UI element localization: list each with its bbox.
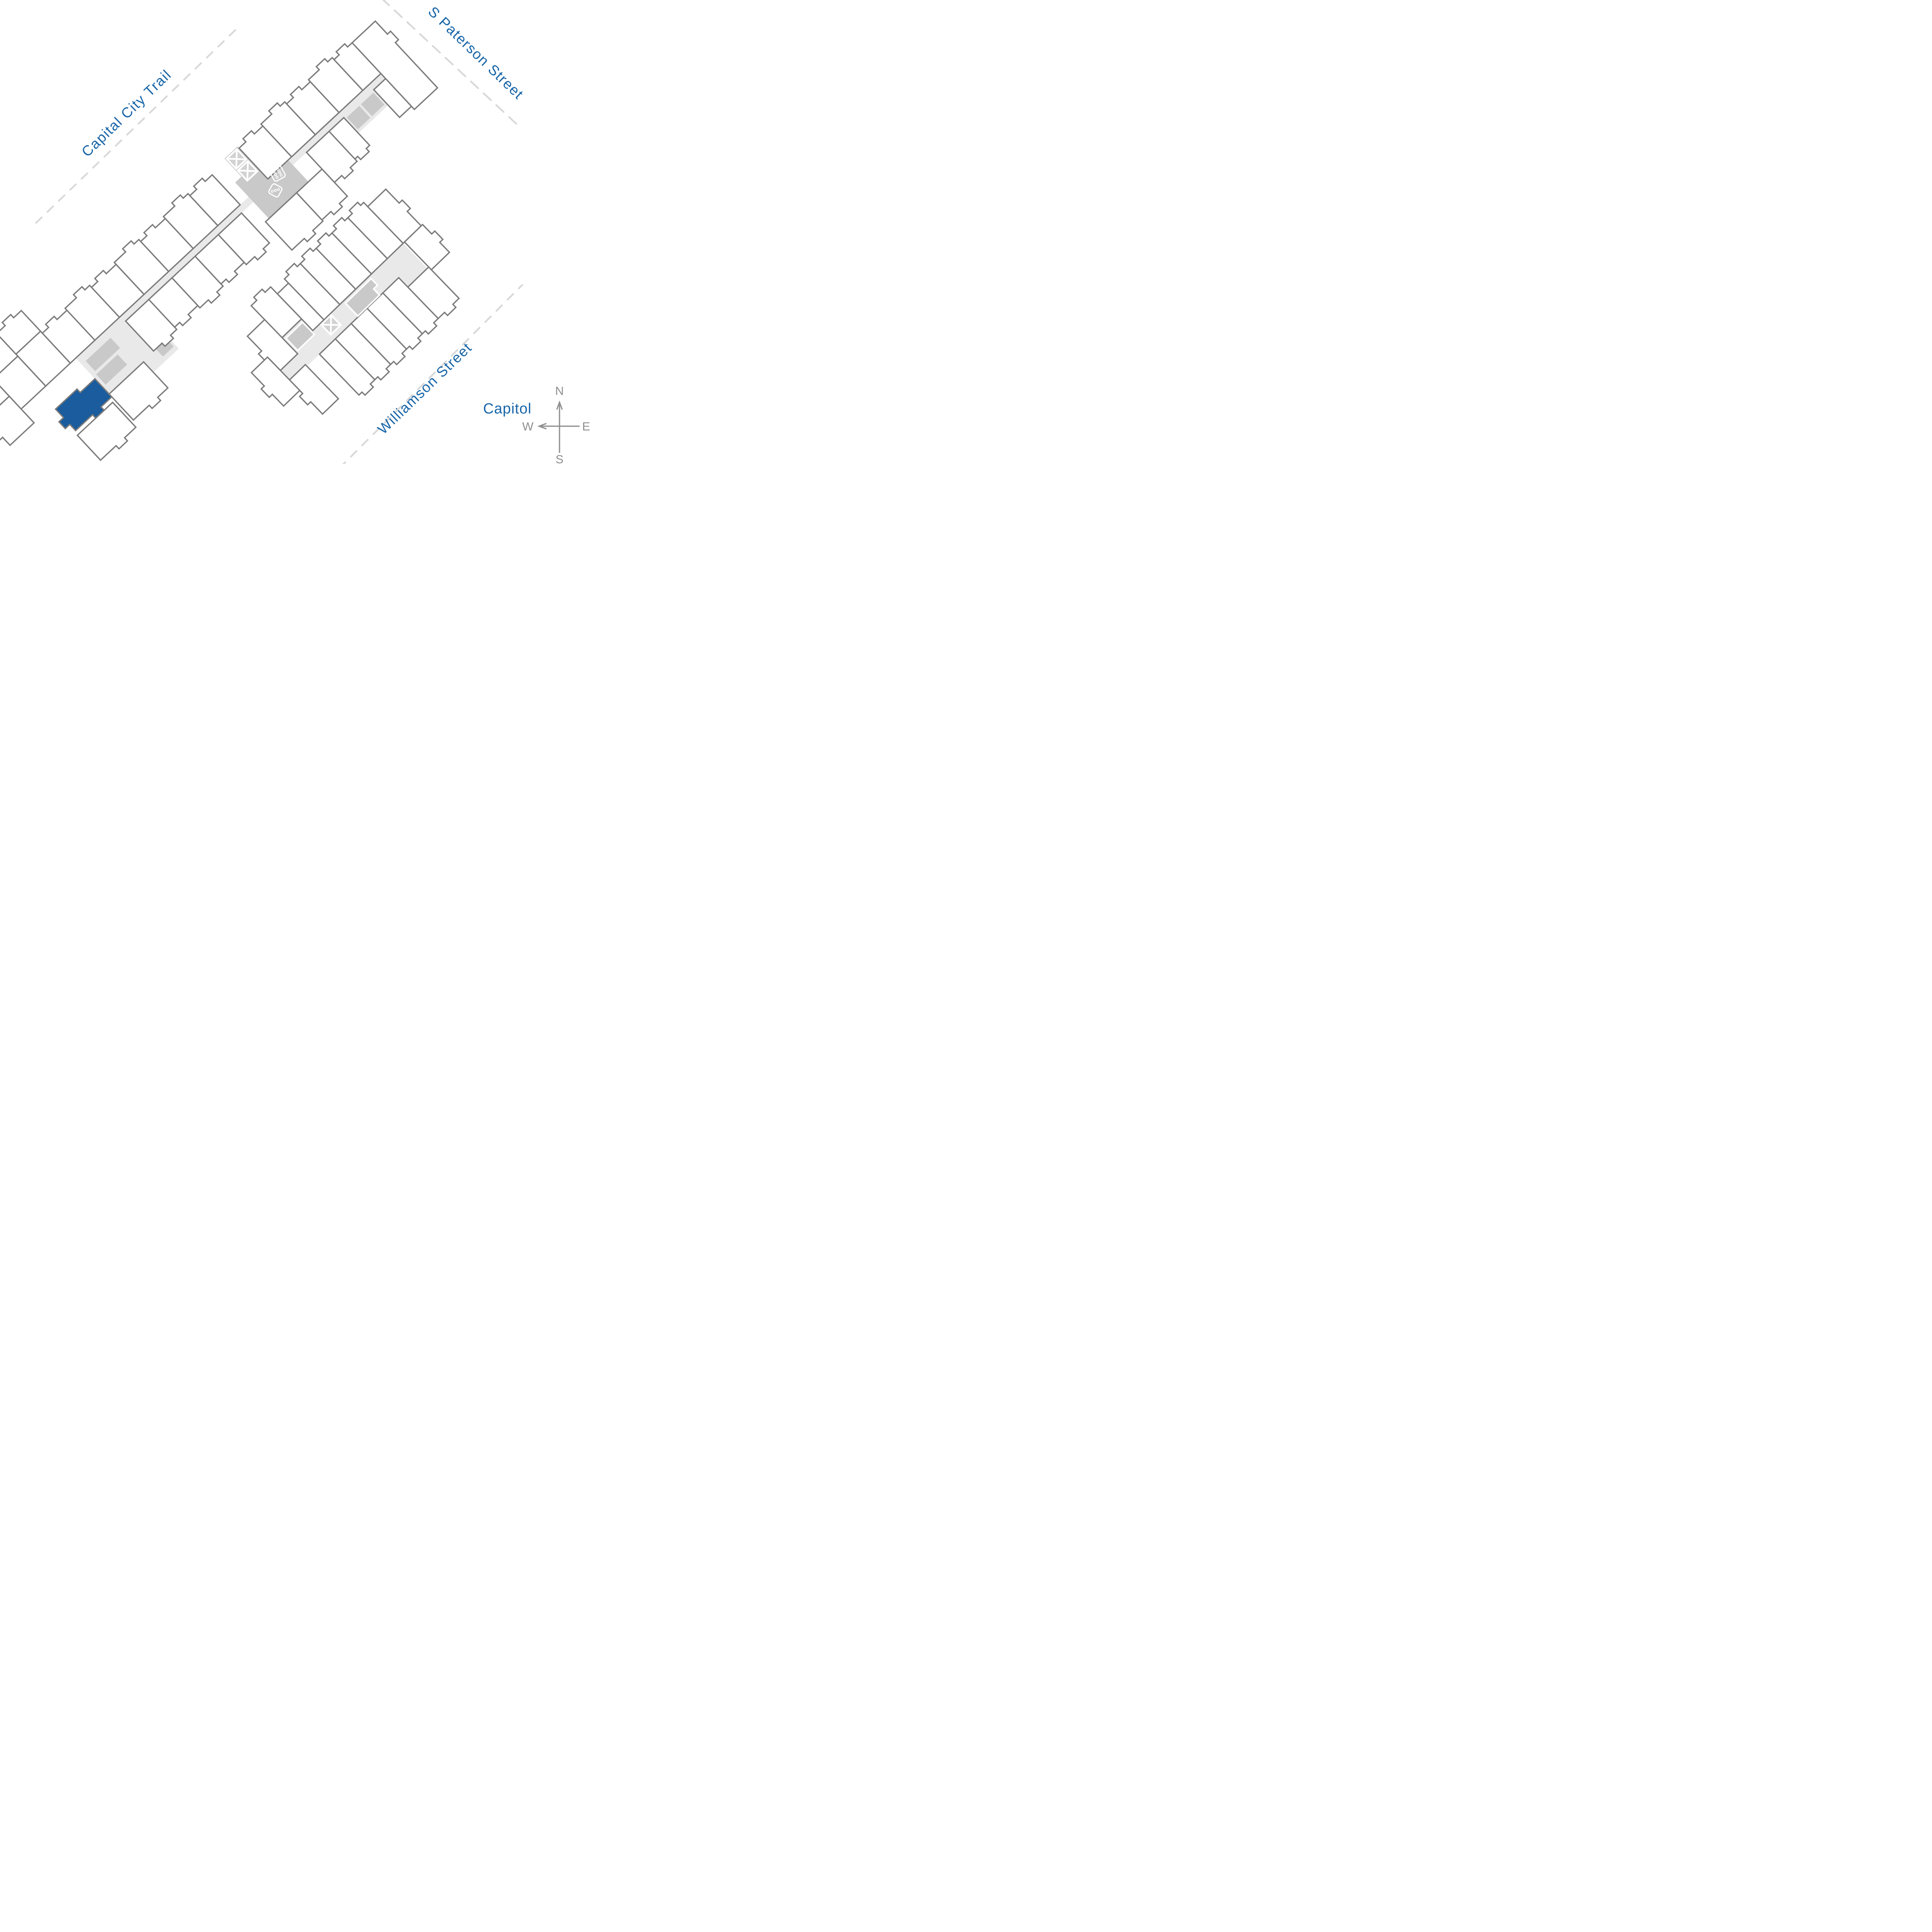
capitol-label: Capitol [483, 401, 531, 417]
compass-west-label: W [522, 420, 534, 433]
site-plan-map: Capital City Trail S Paterson Street Wil… [0, 0, 591, 464]
site-plan-page: Capital City Trail S Paterson Street Wil… [0, 0, 591, 464]
compass-east-label: E [582, 420, 590, 433]
unit-outline [0, 396, 34, 448]
building-east-wing [212, 175, 483, 444]
compass-north-label: N [555, 384, 564, 398]
compass-rose: N S W E [522, 384, 590, 464]
street-label-capital-city-trail: Capital City Trail [78, 66, 174, 160]
compass-south-label: S [556, 452, 564, 464]
